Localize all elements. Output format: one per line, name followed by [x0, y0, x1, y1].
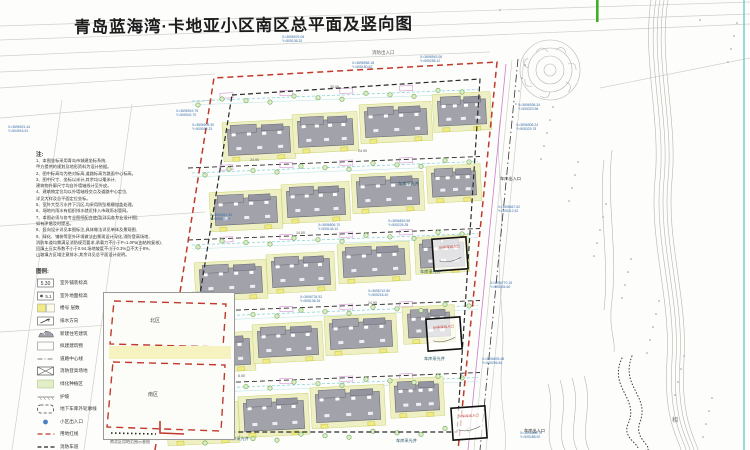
building-wing — [367, 106, 393, 115]
building-wing — [434, 168, 453, 177]
balcony — [219, 272, 223, 275]
light-well-label: 车库采光井 — [398, 180, 419, 187]
balcony — [399, 114, 403, 117]
garage-box-outline — [426, 317, 462, 351]
balcony — [291, 334, 295, 337]
balcony — [277, 406, 281, 409]
balcony — [338, 341, 343, 344]
coord-label-y: Y=505304.60 — [490, 285, 510, 289]
spot-dot — [593, 255, 595, 257]
legend-label: 室外地面标高 — [60, 293, 88, 299]
tree-icon — [220, 239, 224, 243]
balcony — [324, 414, 329, 417]
spot-dot — [705, 423, 707, 425]
planned-bldg-icon — [36, 341, 56, 351]
balcony — [247, 132, 251, 135]
light-well — [277, 289, 284, 293]
balcony — [407, 197, 412, 200]
tree-icon — [340, 383, 344, 387]
light-well — [437, 199, 444, 203]
parking-outline — [340, 160, 353, 165]
tree-icon — [299, 308, 303, 312]
dimension-label: 14.00 — [296, 231, 305, 235]
parking-outline — [340, 376, 353, 381]
building-wing — [233, 264, 255, 271]
parking-outline — [340, 88, 353, 93]
tree-icon — [196, 103, 200, 107]
balcony — [377, 254, 381, 257]
balcony — [257, 146, 262, 149]
fire-pad-icon — [36, 366, 56, 376]
legend-label: 绿化种植区 — [60, 381, 83, 387]
coord-label-y: Y=505258.12 — [420, 59, 440, 63]
garage-entrance-box: 6#车库出入口 — [426, 317, 462, 351]
tree-icon — [364, 377, 368, 381]
balcony — [364, 326, 368, 329]
legend-label: 小区出入口 — [60, 419, 83, 425]
balcony — [416, 403, 421, 406]
key-map: 北区 南区 — [103, 292, 235, 440]
balcony — [386, 198, 391, 201]
light-well — [415, 137, 422, 141]
firelane-icon — [36, 442, 56, 450]
balcony — [292, 405, 296, 408]
tree-icon — [443, 426, 447, 430]
building-cluster — [266, 251, 336, 294]
spot-dot — [540, 158, 542, 160]
balcony — [351, 269, 356, 272]
light-well — [238, 367, 245, 371]
spot-dot — [499, 9, 501, 11]
balcony — [416, 329, 421, 332]
spot-dot — [655, 313, 657, 315]
tree-icon — [460, 232, 464, 236]
garage-entrance-box: 7#车库出入口 — [451, 406, 487, 440]
garage-line-icon — [36, 404, 56, 414]
coord-label-y: Y=505329.78 — [516, 127, 536, 131]
drain-arrow-icon — [36, 316, 56, 326]
light-well — [292, 219, 299, 223]
building-cluster — [337, 241, 411, 284]
slope-icon — [36, 392, 56, 402]
tree-icon — [251, 436, 255, 440]
tree-icon — [316, 96, 320, 100]
balcony — [292, 421, 297, 424]
balcony — [234, 272, 238, 275]
coord-label-y: Y=505226.35 — [388, 223, 408, 227]
svg-text:5.30: 5.30 — [41, 281, 51, 287]
parking-outline — [400, 302, 413, 307]
tree-icon — [316, 238, 320, 242]
garage-box-outline — [432, 237, 468, 271]
spot-dot — [683, 355, 685, 357]
tree-icon — [395, 163, 399, 167]
tree-icon — [364, 91, 368, 95]
light-well — [362, 209, 369, 213]
tree-icon — [460, 90, 464, 94]
building-wing — [327, 116, 347, 123]
tree-icon — [292, 94, 296, 98]
legend-label: 护坡 — [60, 394, 69, 400]
redline-icon — [36, 429, 56, 439]
building-cluster — [252, 321, 324, 364]
building-wing — [363, 318, 385, 325]
building-wing — [318, 186, 339, 193]
spot-dot — [571, 187, 573, 189]
building-wing — [276, 398, 297, 405]
balcony — [341, 123, 345, 126]
legend-label: 楼号 层数 — [60, 305, 80, 311]
keymap-caption: 南北区用地范围示意图 — [110, 439, 150, 445]
balcony — [391, 184, 395, 187]
light-well-label: 车库采光井 — [396, 437, 417, 444]
light-well — [250, 295, 257, 299]
balcony — [249, 202, 253, 205]
light-well-label: 车库采光井 — [424, 355, 445, 362]
tree-icon — [395, 431, 399, 435]
building-wing — [248, 194, 270, 201]
balcony — [429, 402, 434, 405]
tree-icon — [443, 158, 447, 162]
legend-heading: 图例: — [36, 267, 156, 275]
coord-label-y: Y=504916.51 — [8, 129, 28, 133]
light-well — [278, 155, 285, 159]
balcony — [249, 271, 253, 274]
spot-dot — [736, 22, 738, 24]
balcony — [424, 248, 428, 251]
balcony — [305, 194, 309, 197]
balcony — [219, 203, 223, 206]
notes-heading: 注: — [36, 150, 188, 158]
balcony — [333, 207, 338, 210]
garage-entrance-box: 5#车库出入口 — [432, 237, 468, 271]
svg-text:5.1: 5.1 — [45, 294, 52, 299]
spot-dot — [730, 48, 732, 50]
balcony — [266, 349, 271, 352]
legend-label: 道路中心线 — [60, 356, 83, 362]
note-line: 山坡填方区域注意排水,其余详见总平面设计说明。 — [36, 252, 188, 258]
legend-label: 拟建建筑物 — [60, 343, 83, 349]
spot-dot — [677, 381, 679, 383]
legend-label: 用地红线 — [60, 431, 78, 437]
spot-dot — [596, 242, 598, 244]
balcony — [244, 216, 249, 219]
balcony — [324, 138, 329, 141]
tree-icon — [364, 233, 368, 237]
light-well — [318, 287, 325, 291]
spot-dot — [577, 161, 579, 163]
new-bldg-icon — [36, 329, 56, 339]
tree-icon — [251, 312, 255, 316]
elev-ground-icon: 5.1 — [36, 291, 56, 301]
parking-outline — [400, 86, 413, 91]
coord-label-y: Y=505323.96 — [518, 107, 538, 111]
balcony — [384, 114, 388, 117]
tree-icon — [323, 310, 327, 314]
balcony — [328, 124, 332, 127]
light-well — [370, 139, 377, 143]
building-wing — [260, 326, 286, 335]
balcony — [359, 340, 364, 343]
dimension-label: 24.90 — [250, 158, 259, 162]
tree-icon — [388, 93, 392, 97]
spot-dot — [711, 397, 713, 399]
bldg-no-icon — [36, 303, 56, 313]
spot-dot — [549, 119, 551, 121]
balcony — [361, 185, 365, 188]
balcony — [436, 177, 440, 180]
building-cluster — [292, 111, 359, 153]
building-wing — [398, 106, 420, 113]
building-wing — [440, 96, 461, 105]
balcony — [262, 335, 266, 338]
tree-icon — [467, 304, 471, 308]
tree-icon — [268, 242, 272, 246]
balcony — [414, 113, 418, 116]
building-wing — [300, 116, 323, 125]
spot-dot — [646, 352, 648, 354]
legend-label: 室外铺装标高 — [60, 280, 88, 286]
light-well — [393, 277, 400, 281]
balcony — [236, 147, 241, 150]
balcony — [453, 104, 457, 107]
dimension-label: 24.90 — [368, 301, 377, 305]
building-wing — [359, 176, 385, 185]
tree-icon — [388, 379, 392, 383]
balcony — [232, 133, 236, 136]
balcony — [446, 118, 451, 121]
spot-dot — [574, 174, 576, 176]
light-well — [306, 357, 313, 361]
building-cluster — [209, 189, 283, 232]
parking-outline — [280, 234, 293, 239]
tree-icon — [299, 432, 303, 436]
spot-dot — [630, 258, 632, 260]
light-well — [368, 422, 375, 426]
tree-icon — [436, 88, 440, 92]
light-well-label: 车库采光井 — [420, 268, 441, 275]
balcony — [412, 318, 416, 321]
spot-dot — [543, 145, 545, 147]
building-cluster — [389, 377, 445, 419]
dotted-path — [618, 356, 648, 450]
balcony — [318, 277, 323, 280]
coord-label-y: Y=505042.70 — [176, 113, 196, 117]
coord-label-y: Y=505312.52 — [498, 209, 518, 213]
spot-dot — [552, 106, 554, 108]
balcony — [365, 199, 370, 202]
tree-icon — [268, 100, 272, 104]
balcony — [440, 188, 445, 191]
building-wing — [202, 264, 228, 273]
dimension-label: 30.00 — [330, 85, 339, 89]
light-well — [341, 147, 348, 151]
balcony — [304, 264, 308, 267]
balcony — [262, 406, 266, 409]
balcony — [334, 327, 338, 330]
spot-dot — [624, 284, 626, 286]
building-wing — [274, 256, 299, 265]
balcony — [333, 193, 337, 196]
balcony — [264, 201, 268, 204]
tree-icon — [412, 236, 416, 240]
legend-label: 消防登高场地 — [60, 368, 88, 374]
light-well — [303, 149, 310, 153]
light-well — [265, 225, 272, 229]
light-well — [177, 441, 184, 445]
tree-icon — [347, 167, 351, 171]
tree-icon — [412, 380, 416, 384]
building-wing — [246, 398, 272, 407]
balcony — [466, 187, 471, 190]
parking-outline — [340, 232, 353, 237]
building-cluster — [238, 393, 310, 438]
light-well — [220, 227, 227, 231]
legend-label: 排水方向 — [60, 318, 78, 324]
light-well — [464, 197, 471, 201]
coord-label-y: Y=505146.10 — [318, 227, 338, 231]
balcony — [464, 104, 468, 107]
light-well — [321, 424, 328, 428]
building-wing — [418, 381, 434, 388]
balcony — [392, 253, 396, 256]
building-cluster — [324, 313, 398, 356]
balcony — [291, 195, 295, 198]
balcony — [306, 139, 311, 142]
spot-dot — [680, 368, 682, 370]
spot-dot — [652, 326, 654, 328]
tree-icon — [227, 167, 231, 171]
coord-label-y: Y=505180.62 — [352, 65, 372, 69]
balcony — [394, 128, 399, 131]
balcony — [208, 287, 213, 290]
tree-icon — [196, 245, 200, 249]
building-wing — [430, 309, 445, 316]
balcony — [265, 215, 270, 218]
spot-dot — [649, 339, 651, 341]
balcony — [204, 273, 208, 276]
balcony — [466, 175, 470, 178]
light-well — [335, 351, 342, 355]
balcony — [319, 194, 323, 197]
tree-icon — [323, 166, 327, 170]
tree-icon — [371, 429, 375, 433]
spot-dot — [518, 90, 520, 92]
balcony — [399, 390, 403, 393]
balcony — [419, 389, 423, 392]
balcony — [277, 131, 281, 134]
tree-icon — [316, 382, 320, 386]
site-plan-drawing: 5#车库出入口6#车库出入口7#车库出入口 X=3696976.08Y=5051… — [0, 0, 750, 450]
garage-box-outline — [451, 406, 487, 440]
building-wing — [217, 194, 243, 203]
tree-icon — [244, 240, 248, 244]
coord-label-y: Y=505288.92 — [520, 435, 540, 439]
adjacent-parcel-label: 相 — [672, 416, 678, 424]
notes-lines: 1、本图坐标采用青岛市城建坐标系统, 甲方提供的规划及地形资料为设计依据。2、图… — [36, 158, 188, 259]
spot-dot — [621, 297, 623, 299]
balcony — [250, 285, 255, 288]
tree-icon — [244, 98, 248, 102]
contour-lines — [499, 0, 698, 450]
spot-dot — [605, 203, 607, 205]
coord-label-y: Y=505138.26 — [300, 299, 320, 303]
light-well — [292, 431, 299, 435]
green-icon — [36, 379, 56, 389]
balcony — [373, 129, 378, 132]
legend-row: 5.30室外铺装标高 — [36, 277, 156, 290]
spot-dot — [708, 410, 710, 412]
building-wing — [350, 389, 373, 396]
parking-outline — [400, 158, 413, 163]
balcony — [446, 176, 450, 179]
balcony — [295, 209, 300, 212]
spot-dot — [524, 64, 526, 66]
balcony — [367, 396, 371, 399]
building-wing — [290, 326, 311, 333]
building-wing — [230, 124, 256, 133]
spot-dot — [699, 19, 701, 21]
balcony — [456, 176, 460, 179]
balcony — [335, 397, 339, 400]
tree-icon — [371, 305, 375, 309]
spot-dot — [515, 103, 517, 105]
keymap-south-label: 南区 — [148, 391, 158, 398]
legend-label: 消防车道 — [60, 444, 78, 450]
balcony — [409, 389, 413, 392]
legend-label: 新建住宅建筑 — [60, 331, 88, 337]
tree-icon — [220, 97, 224, 101]
balcony — [314, 208, 319, 211]
tree-icon — [244, 384, 248, 388]
tree-icon — [292, 380, 296, 384]
tree-icon — [395, 307, 399, 311]
balcony — [262, 132, 266, 135]
fire-access-label: 消防出入口 — [372, 50, 395, 56]
balcony — [347, 255, 351, 258]
balcony — [306, 333, 310, 336]
coord-label-y: Y=505296.84 — [482, 361, 502, 365]
building-wing — [303, 256, 324, 263]
balcony — [372, 268, 377, 271]
light-well — [413, 340, 420, 344]
building-cluster — [281, 181, 351, 224]
balcony — [342, 137, 347, 140]
light-well — [443, 128, 450, 132]
balcony — [276, 334, 280, 337]
light-well — [233, 157, 240, 161]
balcony — [403, 403, 408, 406]
tree-icon — [340, 97, 344, 101]
light-well — [407, 207, 414, 211]
balcony — [238, 357, 243, 360]
balcony — [306, 347, 311, 350]
green-marker — [596, 0, 599, 22]
tree-icon — [436, 374, 440, 378]
parking-outline — [280, 378, 293, 383]
balcony — [234, 202, 238, 205]
coord-label-y: Y=505218.40 — [368, 293, 388, 297]
balcony — [286, 348, 291, 351]
balcony — [349, 326, 353, 329]
balcony — [280, 279, 285, 282]
tree-icon — [340, 239, 344, 243]
balcony — [278, 145, 283, 148]
balcony — [248, 407, 252, 410]
tree-icon — [436, 230, 440, 234]
balcony — [380, 339, 385, 342]
coord-label-y: Y=505136.32 — [282, 39, 302, 43]
